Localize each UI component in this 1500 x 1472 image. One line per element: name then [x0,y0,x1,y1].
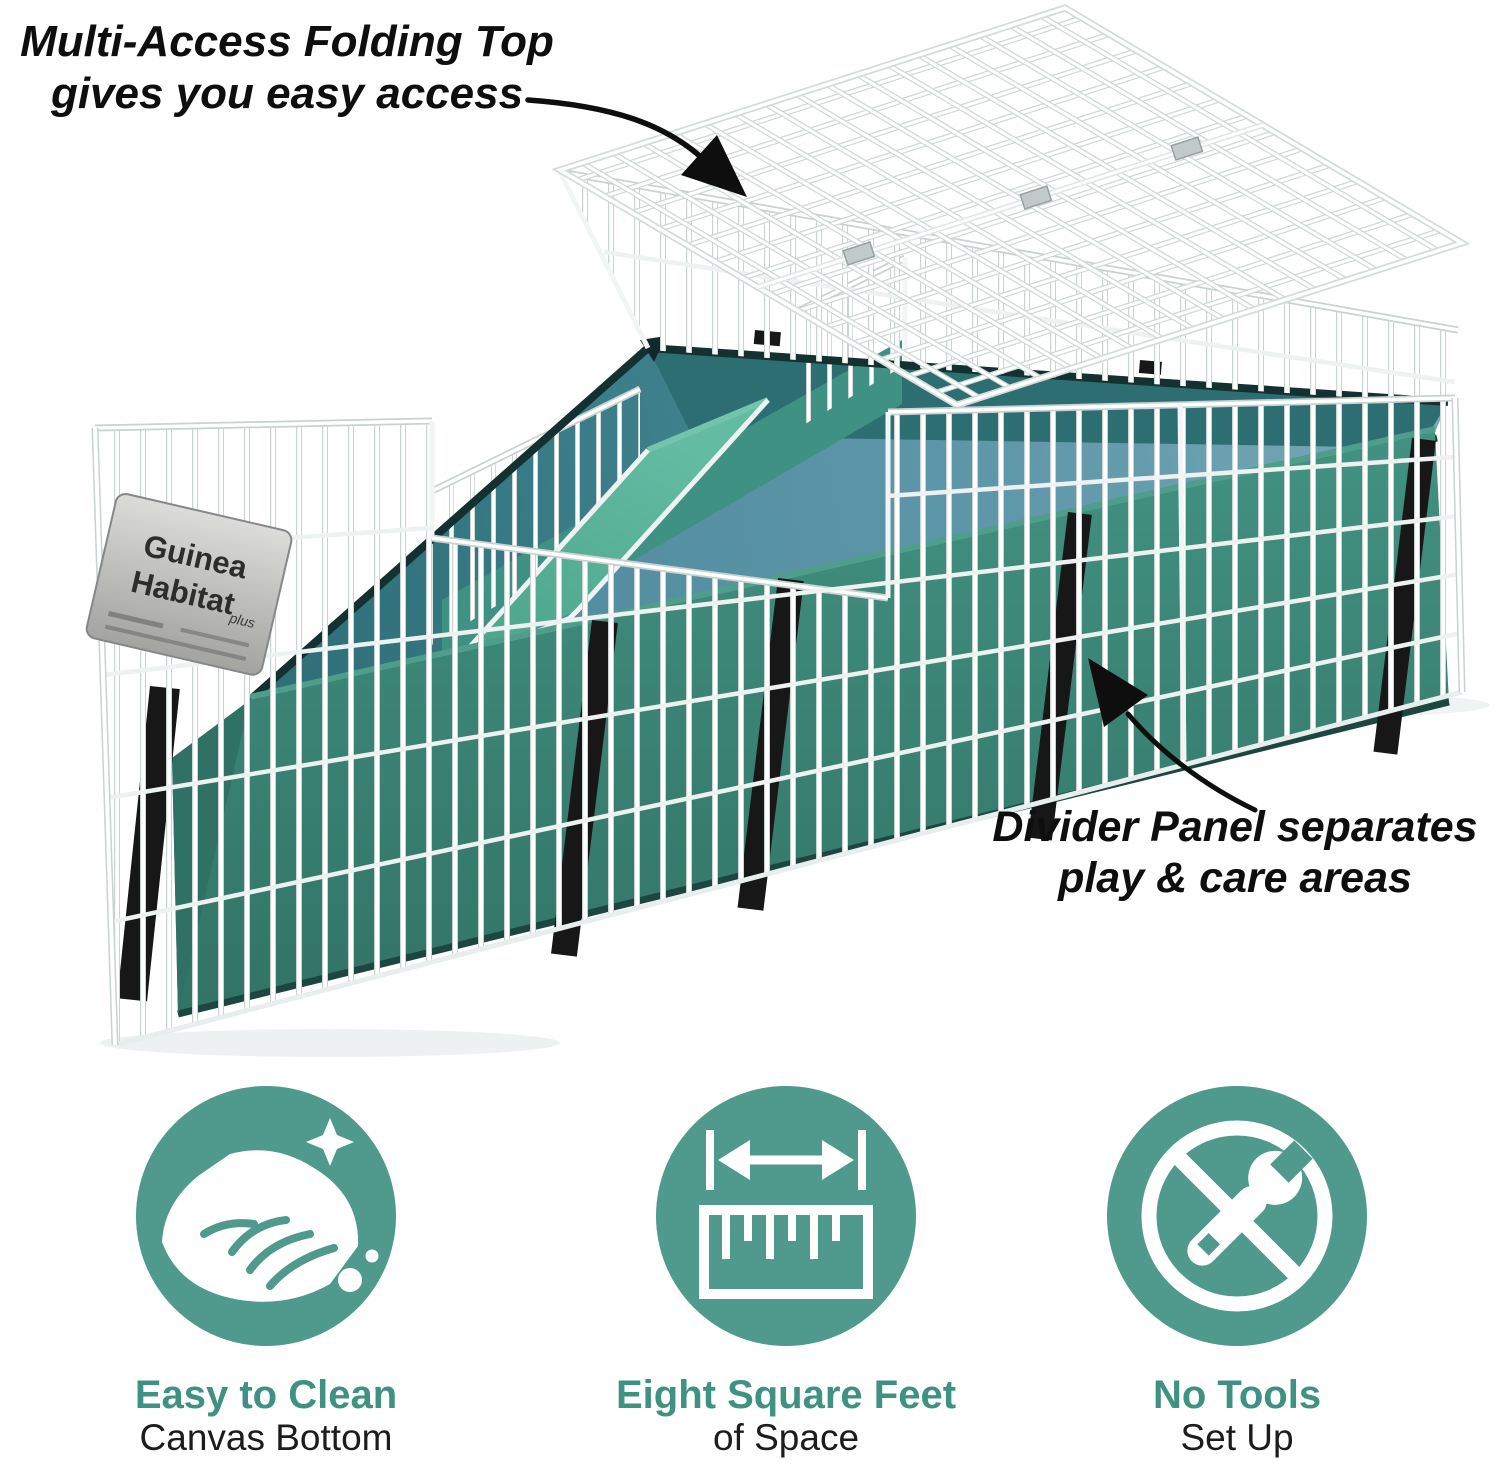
feature-easy-to-clean: Easy to Clean Canvas Bottom [86,1084,446,1458]
folding-top-annotation-line1: Multi-Access Folding Top [0,16,580,68]
divider-annotation-line1: Divider Panel separates [975,802,1495,853]
product-infographic: Guinea Habitat plus Multi-Access Folding… [0,0,1500,1472]
folding-top-annotation: Multi-Access Folding Top gives you easy … [0,16,580,120]
no-tools-icon [1105,1084,1369,1348]
divider-annotation-line2: play & care areas [975,853,1495,904]
feature-title: Eight Square Feet [606,1374,966,1416]
feature-subtitle: Canvas Bottom [86,1419,446,1458]
hand-wipe-icon [134,1084,398,1348]
feature-eight-square-feet: Eight Square Feet of Space [606,1084,966,1458]
folding-top-annotation-line2: gives you easy access [0,68,580,120]
feature-subtitle: Set Up [1057,1419,1417,1458]
feature-title: No Tools [1057,1374,1417,1416]
feature-title: Easy to Clean [86,1374,446,1416]
divider-annotation: Divider Panel separates play & care area… [975,802,1495,903]
ruler-icon [654,1084,918,1348]
feature-no-tools: No Tools Set Up [1057,1084,1417,1458]
cage-photo: Guinea Habitat plus [0,0,1500,1080]
feature-subtitle: of Space [606,1419,966,1458]
